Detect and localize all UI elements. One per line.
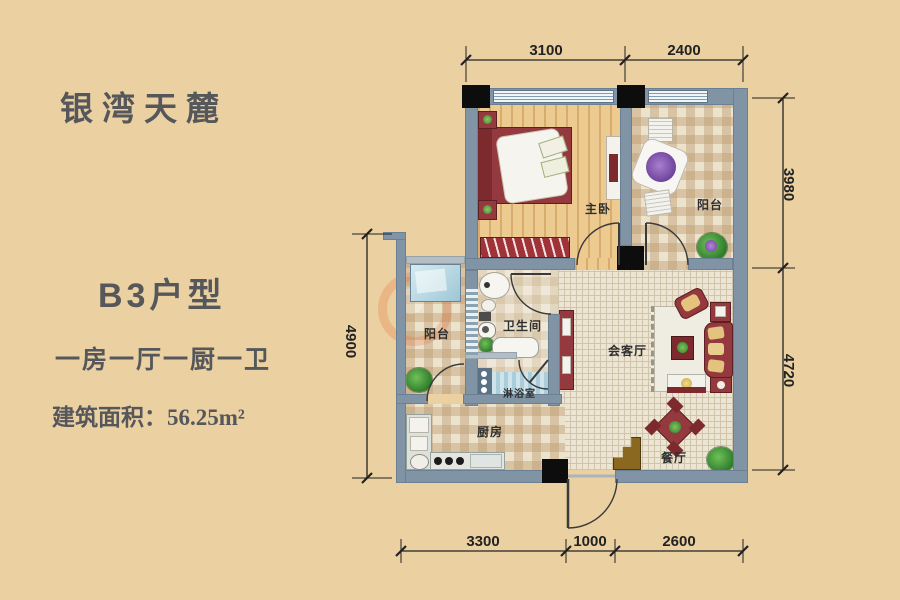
plan-lines-overlay bbox=[0, 0, 900, 600]
dim-right-3980: 3980 bbox=[780, 168, 797, 201]
shower-door-leaf bbox=[530, 360, 548, 382]
label-master-bedroom: 主卧 bbox=[585, 200, 611, 217]
left-balcony-door-arc bbox=[427, 364, 464, 401]
dim-right-4720: 4720 bbox=[780, 354, 797, 387]
label-bathroom: 卫生间 bbox=[503, 317, 542, 334]
floorplan-page: 银湾天麓 B3户型 一房一厅一厨一卫 建筑面积：56.25m² bbox=[0, 0, 900, 600]
dim-top-2400: 2400 bbox=[667, 42, 700, 59]
dim-left-4900: 4900 bbox=[342, 325, 359, 358]
dim-bottom-2600: 2600 bbox=[662, 533, 695, 550]
label-living-room: 会客厅 bbox=[608, 342, 647, 359]
label-kitchen: 厨房 bbox=[477, 423, 503, 440]
door-arcs bbox=[427, 223, 688, 528]
entry-door-arc bbox=[568, 479, 617, 528]
bathroom-door-arc bbox=[511, 274, 551, 314]
dim-top-3100: 3100 bbox=[529, 42, 562, 59]
label-shower-room: 淋浴室 bbox=[503, 385, 536, 400]
balcony-door-arc bbox=[646, 223, 688, 265]
label-balcony-top: 阳台 bbox=[697, 196, 723, 213]
label-balcony-left: 阳台 bbox=[424, 325, 450, 342]
bedroom-door-arc bbox=[577, 223, 619, 265]
dim-bottom-1000: 1000 bbox=[573, 533, 606, 550]
dim-bottom-3300: 3300 bbox=[466, 533, 499, 550]
label-dining-room: 餐厅 bbox=[661, 449, 687, 466]
dimension-lines bbox=[352, 46, 795, 563]
